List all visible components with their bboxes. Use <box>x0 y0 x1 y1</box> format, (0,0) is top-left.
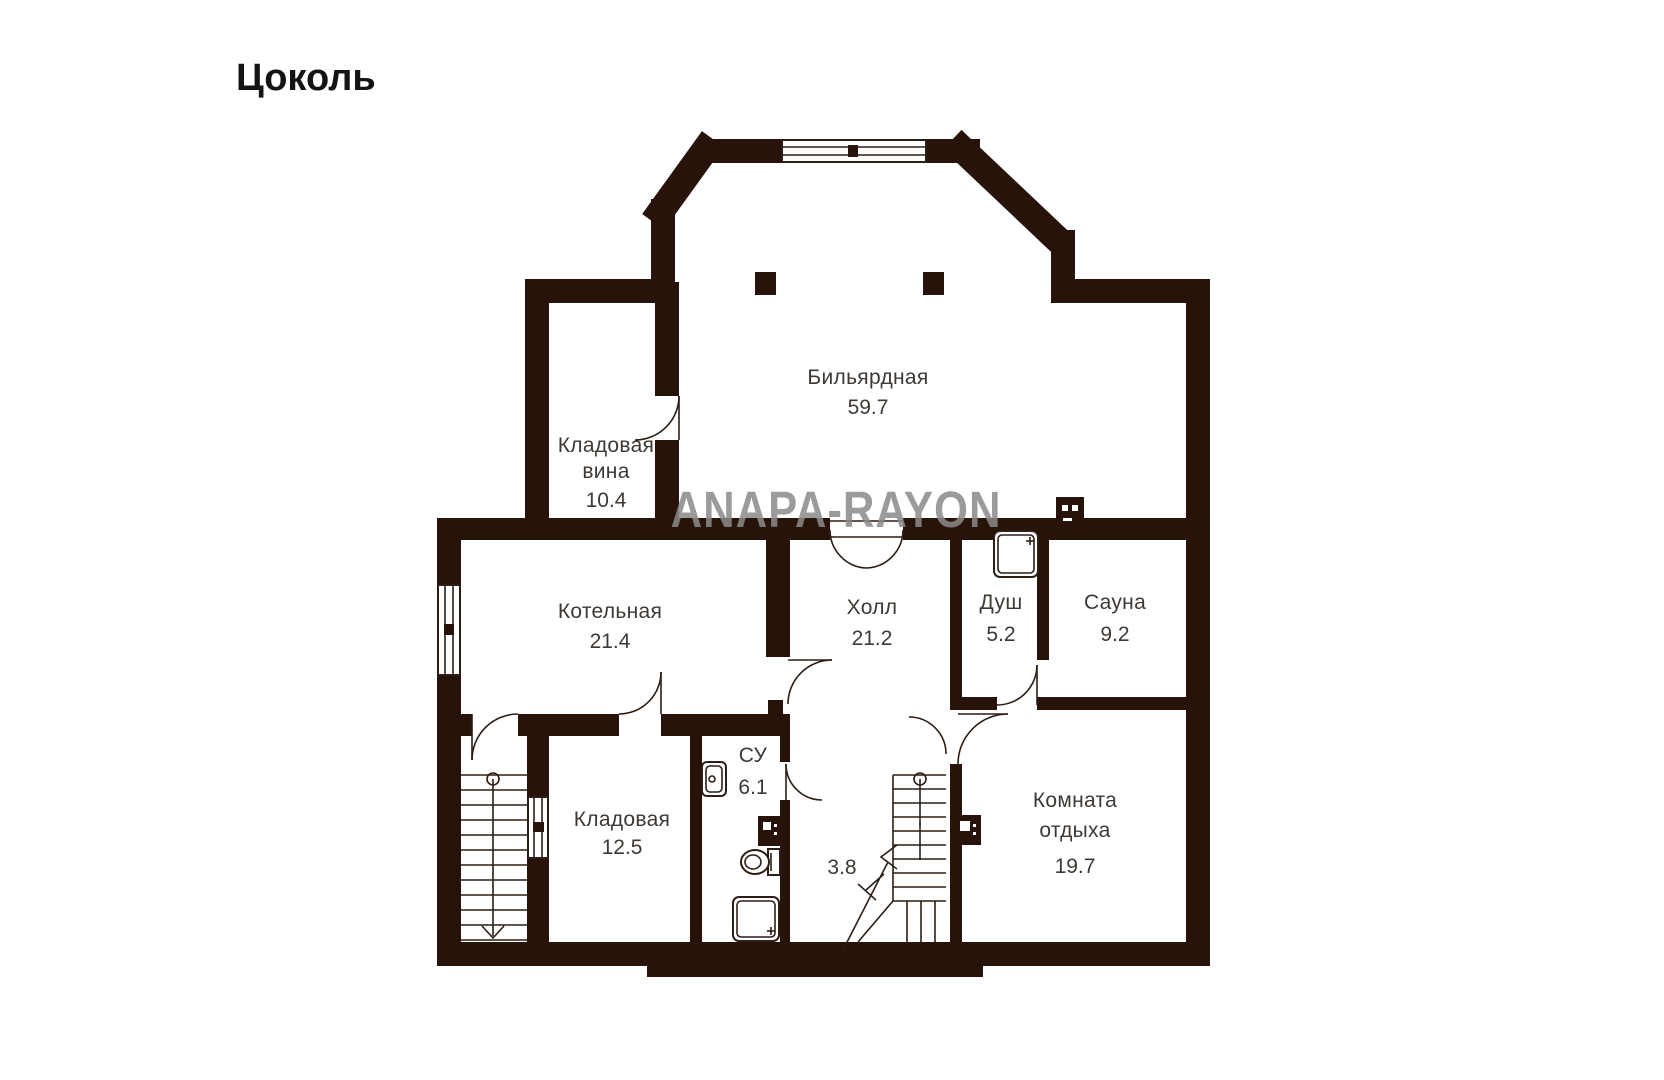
room-area-hall: 21.2 <box>852 627 893 650</box>
room-area-shower: 5.2 <box>986 623 1015 646</box>
wall-segment <box>766 540 790 657</box>
door-arc-icon <box>909 717 946 754</box>
room-name-sauna: Сауна <box>1084 591 1146 614</box>
room-name-boiler: Котельная <box>558 600 662 623</box>
room-name-lounge: Комната <box>1033 789 1117 812</box>
room-name-billiard: Бильярдная <box>807 366 928 389</box>
columns <box>755 272 944 295</box>
wall-segment <box>661 714 790 736</box>
wall-segment <box>518 714 619 736</box>
door-arc-icon <box>788 660 832 704</box>
wall-segment <box>655 282 679 396</box>
room-area-boiler: 21.4 <box>590 630 631 653</box>
room-name-storage: Кладовая <box>574 808 670 831</box>
electrical-panel-icon <box>758 816 782 846</box>
room-name-wc: СУ <box>739 744 768 767</box>
room-name-wine-storage: Кладовая <box>558 434 654 457</box>
room-name-shower: Душ <box>980 591 1023 614</box>
room-area-storage: 12.5 <box>602 836 643 859</box>
wall-segment <box>1051 230 1075 282</box>
column-icon <box>923 272 944 295</box>
floor-plan-page: Цоколь <box>0 0 1664 1080</box>
window-icon <box>782 140 926 162</box>
walls <box>437 139 1210 977</box>
column-icon <box>755 272 776 295</box>
wall-segment <box>437 714 472 736</box>
wall-segment <box>780 736 790 762</box>
shower-tray-icon <box>733 897 779 941</box>
wall-segment <box>950 697 997 710</box>
room-name-lounge-2: отдыха <box>1039 819 1110 842</box>
room-area-lounge: 19.7 <box>1055 855 1096 878</box>
room-name-wine-storage-2: вина <box>582 460 629 483</box>
wall-segment <box>647 942 983 977</box>
room-area-sauna: 9.2 <box>1100 623 1129 646</box>
sauna-stove-icon <box>1056 497 1100 531</box>
wall-segment <box>527 858 549 942</box>
wall-segment <box>525 279 549 540</box>
door-arc-icon <box>997 665 1037 705</box>
page-title: Цоколь <box>236 57 376 99</box>
wall-segment <box>527 736 549 797</box>
door-arc-icon <box>786 764 822 800</box>
stairs-down-icon <box>461 773 527 940</box>
wall-segment <box>950 764 962 942</box>
floor-plan-canvas: Цоколь <box>0 0 1664 1080</box>
room-area-wc: 6.1 <box>738 776 767 799</box>
toilet-icon <box>741 849 780 875</box>
wall-segment <box>1037 697 1186 710</box>
room-area-billiard: 59.7 <box>848 396 889 419</box>
wall-segment <box>712 139 782 163</box>
wall-segment <box>1186 279 1210 966</box>
window-icon <box>438 585 460 675</box>
door-arc-icon <box>472 714 518 760</box>
wall-segment <box>768 700 783 716</box>
door-arc-icon <box>619 672 661 714</box>
electrical-panel-icon <box>955 815 981 845</box>
room-name-hall: Холл <box>847 596 898 619</box>
room-area-wine-storage: 10.4 <box>586 489 627 512</box>
stairs-up-icon <box>843 773 946 950</box>
wall-chamfer <box>962 149 1056 238</box>
room-area-stair-landing: 3.8 <box>827 856 856 879</box>
room-labels: Бильярдная 59.7 Кладовая вина 10.4 Котел… <box>558 366 1146 879</box>
watermark: ANAPA-RAYON <box>671 482 1002 539</box>
window-icon <box>528 797 548 858</box>
wall-segment <box>690 736 702 942</box>
door-arc-icon <box>958 714 1008 764</box>
wall-segment <box>950 540 962 700</box>
wall-segment <box>651 199 675 282</box>
